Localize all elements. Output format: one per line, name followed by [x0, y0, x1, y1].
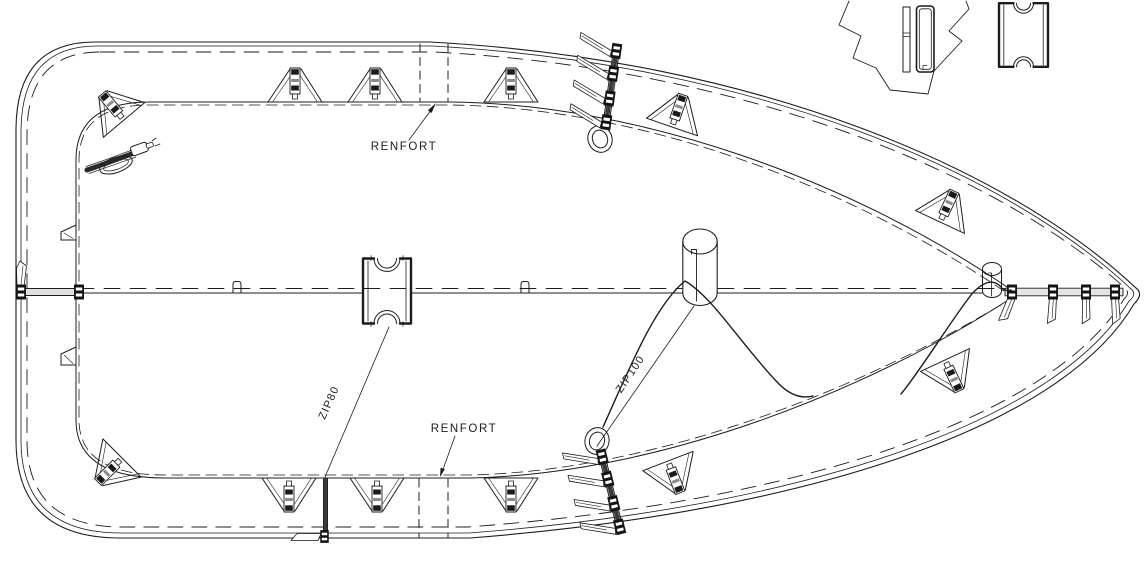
strap-pennant: [995, 295, 1018, 324]
strap-clamp: [1007, 285, 1017, 300]
zip80-foot-flap: [291, 534, 321, 541]
inner-panel-edge: [76, 102, 1013, 478]
attachment-tab: [350, 478, 404, 512]
inner-panel-dashed: [79, 105, 1009, 475]
leader-zip100: [597, 306, 694, 446]
strap-pennant: [1044, 296, 1060, 325]
cad-drawing: RENFORT RENFORT ZIP80 ZIP100: [0, 0, 1144, 566]
zipper-open-detail: [86, 138, 160, 178]
label-zip80: ZIP80: [317, 384, 342, 421]
mast-sleeve-small: [983, 263, 1002, 298]
webbing-loop: [233, 282, 241, 293]
attachment-tab: [484, 478, 538, 512]
strap-pennant: [1109, 297, 1122, 325]
attachment-tab: [268, 68, 322, 102]
renfort-bands: [419, 44, 448, 537]
strap-clamp: [16, 285, 26, 300]
left-edge-tab: [61, 347, 76, 365]
bow-tip-strap: [995, 285, 1123, 325]
webbing-keeper-detail: [999, 3, 1048, 67]
outer-edge: [16, 42, 1140, 538]
attachment-tab: [643, 451, 706, 502]
arrowhead-renfort-top: [428, 103, 436, 113]
cord-waves: [603, 281, 1011, 427]
label-renfort-top: RENFORT: [371, 141, 438, 153]
annotations: RENFORT RENFORT ZIP80 ZIP100: [317, 103, 694, 477]
label-zip100: ZIP100: [614, 353, 648, 395]
edge-zipper-strip: [566, 32, 624, 130]
centerline: [26, 289, 1120, 294]
arrowhead-renfort-bottom: [440, 468, 445, 477]
cord-wave-large: [603, 281, 813, 427]
strap-clamp: [1048, 285, 1058, 300]
zipper-slider: [130, 140, 155, 157]
drawing-canvas: RENFORT RENFORT ZIP80 ZIP100: [0, 0, 1144, 566]
attachment-tab: [81, 77, 144, 138]
label-renfort-bottom: RENFORT: [431, 423, 498, 435]
strap-clamp: [1081, 285, 1091, 300]
strap-clamp: [1110, 285, 1120, 300]
attachment-tab: [646, 86, 708, 136]
hull-outline: [16, 42, 1140, 538]
strap-clamp: [74, 285, 84, 300]
torn-edge-outline: [839, 1, 969, 94]
attachment-tab: [484, 68, 538, 102]
mast-sleeve-large: [683, 229, 717, 306]
attachment-tab: [348, 68, 402, 102]
attachment-tabs: [79, 68, 984, 512]
zip-slider-garage: [363, 256, 411, 327]
detail-breakout-view: [839, 1, 969, 94]
edge-zipper-assemblies: [560, 32, 626, 544]
webbing-loop: [521, 282, 529, 293]
center-strap-left: [16, 261, 84, 300]
attachment-tab: [262, 478, 316, 512]
left-edge-tab: [61, 225, 76, 240]
strap-pennant: [1079, 297, 1093, 325]
attachment-tab: [916, 180, 979, 234]
attachment-tab: [921, 349, 984, 403]
centerline-loops: [233, 282, 529, 293]
drawing-root: RENFORT RENFORT ZIP80 ZIP100: [16, 1, 1140, 544]
batten-slat-thin: [903, 7, 910, 72]
attachment-tab: [79, 439, 141, 501]
